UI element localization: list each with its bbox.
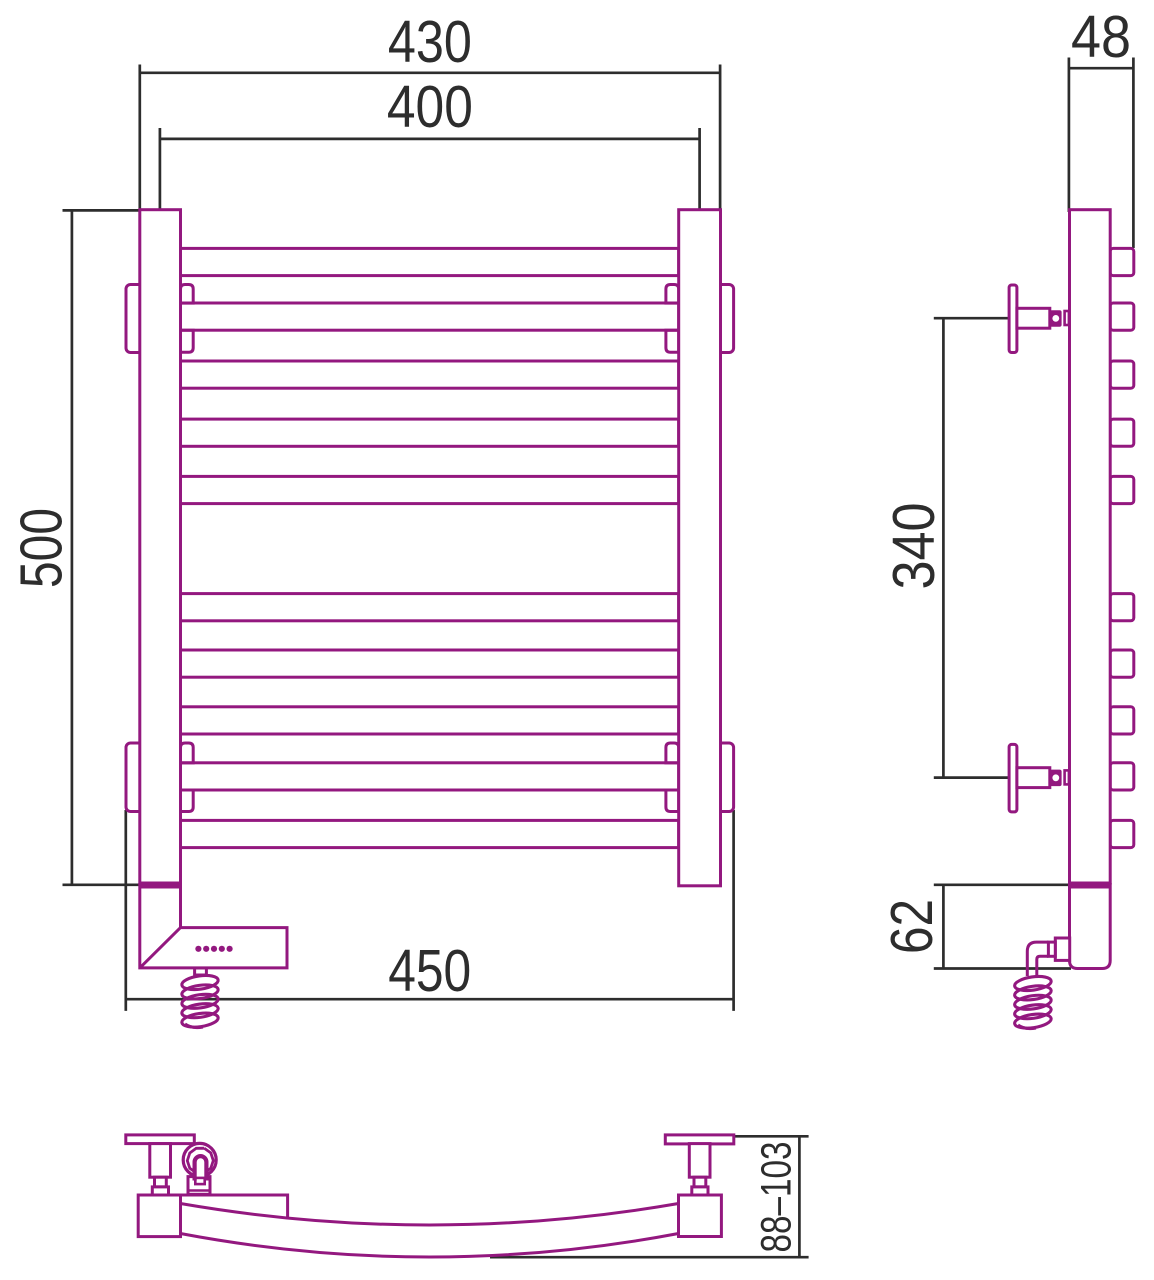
- svg-text:430: 430: [388, 8, 472, 75]
- svg-text:450: 450: [388, 937, 471, 1004]
- svg-text:340: 340: [880, 503, 947, 590]
- svg-text:500: 500: [8, 508, 75, 588]
- svg-text:400: 400: [387, 73, 473, 140]
- svg-text:48: 48: [1071, 3, 1131, 70]
- svg-text:62: 62: [878, 899, 945, 954]
- svg-text:88–103: 88–103: [753, 1142, 800, 1253]
